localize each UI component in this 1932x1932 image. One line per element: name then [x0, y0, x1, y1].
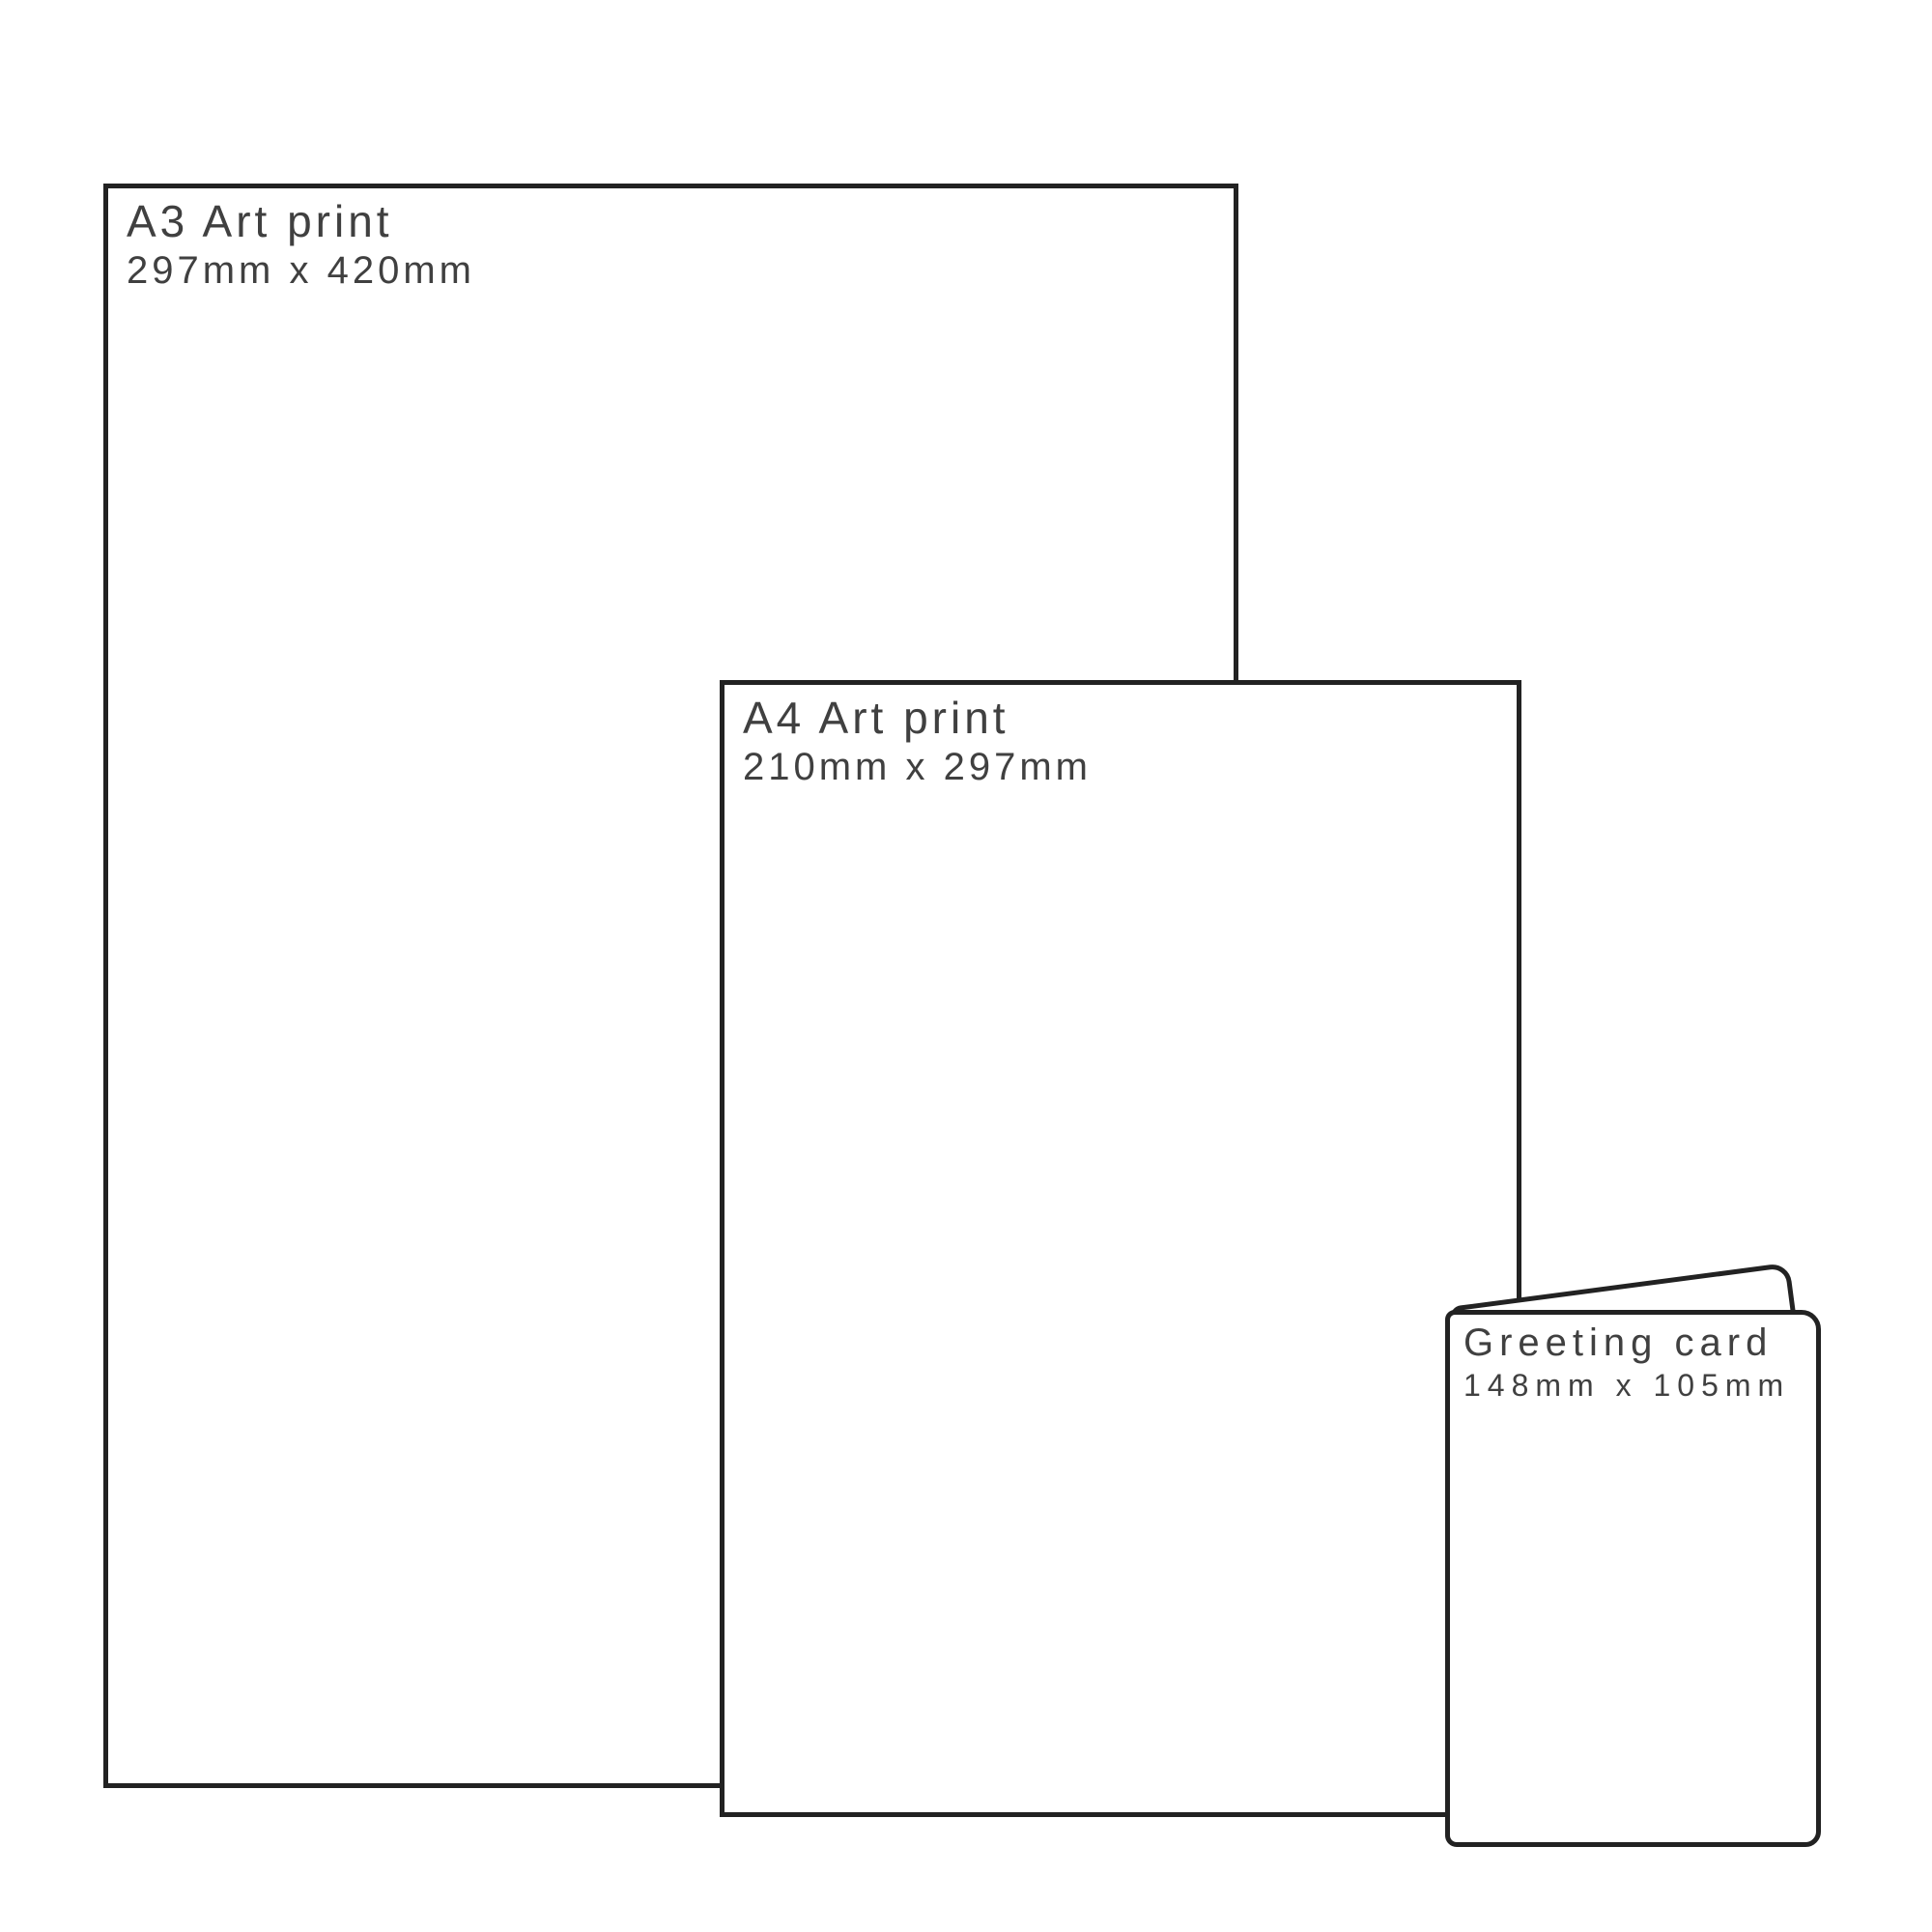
- a3-dimensions: 297mm x 420mm: [127, 249, 475, 292]
- size-comparison-canvas: A3 Art print 297mm x 420mm A4 Art print …: [0, 0, 1932, 1932]
- a4-dimensions: 210mm x 297mm: [743, 746, 1092, 788]
- greeting-card-title: Greeting card: [1463, 1321, 1790, 1365]
- greeting-card-label: Greeting card 148mm x 105mm: [1463, 1321, 1790, 1404]
- a3-title: A3 Art print: [127, 196, 475, 246]
- greeting-card-dimensions: 148mm x 105mm: [1463, 1367, 1790, 1404]
- greeting-card-front-outline: Greeting card 148mm x 105mm: [1445, 1310, 1821, 1847]
- a4-sheet-outline: A4 Art print 210mm x 297mm: [720, 680, 1521, 1817]
- a3-label: A3 Art print 297mm x 420mm: [127, 196, 475, 292]
- a4-label: A4 Art print 210mm x 297mm: [743, 693, 1092, 788]
- a4-title: A4 Art print: [743, 693, 1092, 743]
